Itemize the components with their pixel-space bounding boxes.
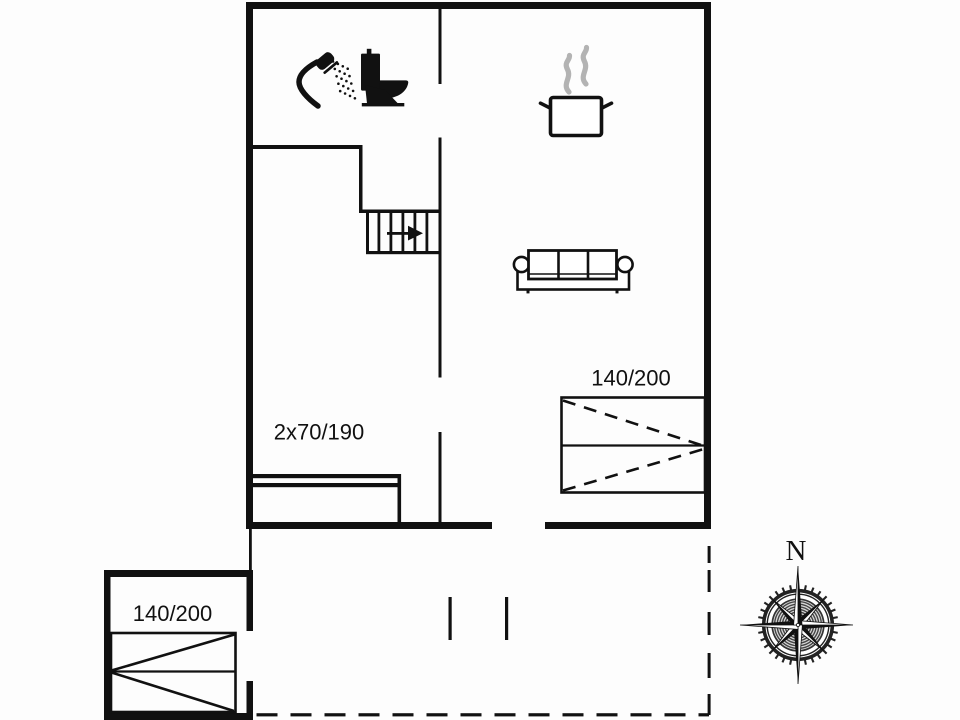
svg-text:2x70/190: 2x70/190: [274, 420, 365, 445]
svg-text:140/200: 140/200: [591, 366, 671, 391]
svg-text:N: N: [786, 535, 807, 567]
svg-text:140/200: 140/200: [133, 601, 213, 626]
